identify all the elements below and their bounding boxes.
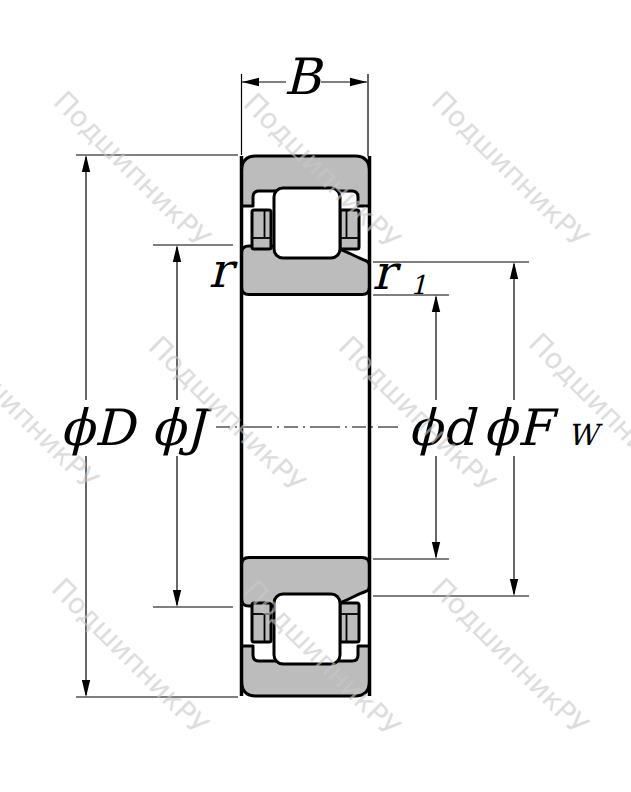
arrowhead-d-top [432, 295, 440, 312]
arrowhead-B-left [242, 78, 259, 86]
arrowhead-D-bottom [82, 680, 90, 697]
arrowhead-D-top [82, 155, 90, 172]
label-inner-chamfer-sub: 1 [410, 270, 427, 300]
arrowhead-J-bottom [173, 590, 181, 607]
watermark-text: ПодшипникРУ [425, 572, 595, 742]
watermark-text: ПодшипникРУ [45, 572, 215, 742]
arrowhead-J-top [173, 245, 181, 262]
watermark-text: ПодшипникРУ [332, 330, 502, 500]
label-width-B: B [284, 48, 324, 106]
arrowhead-Fw-top [510, 262, 518, 279]
label-raceway-main: ϕF [483, 399, 559, 457]
label-outer-chamfer-r: r [209, 242, 239, 298]
cage-bar-top-left [252, 210, 271, 249]
watermark-text: ПодшипникРУ [425, 85, 595, 255]
bearing-diagram-page: B ϕD ϕJ ϕd ϕF [0, 0, 631, 792]
bearing-cross-section-drawing: B ϕD ϕJ ϕd ϕF [0, 0, 631, 792]
arrowhead-Fw-bottom [510, 579, 518, 596]
cage-bar-bottom-right [340, 603, 359, 642]
watermark-text: ПодшипникРУ [47, 85, 217, 255]
arrowhead-B-right [350, 78, 367, 86]
arrowhead-d-bottom [432, 542, 440, 559]
